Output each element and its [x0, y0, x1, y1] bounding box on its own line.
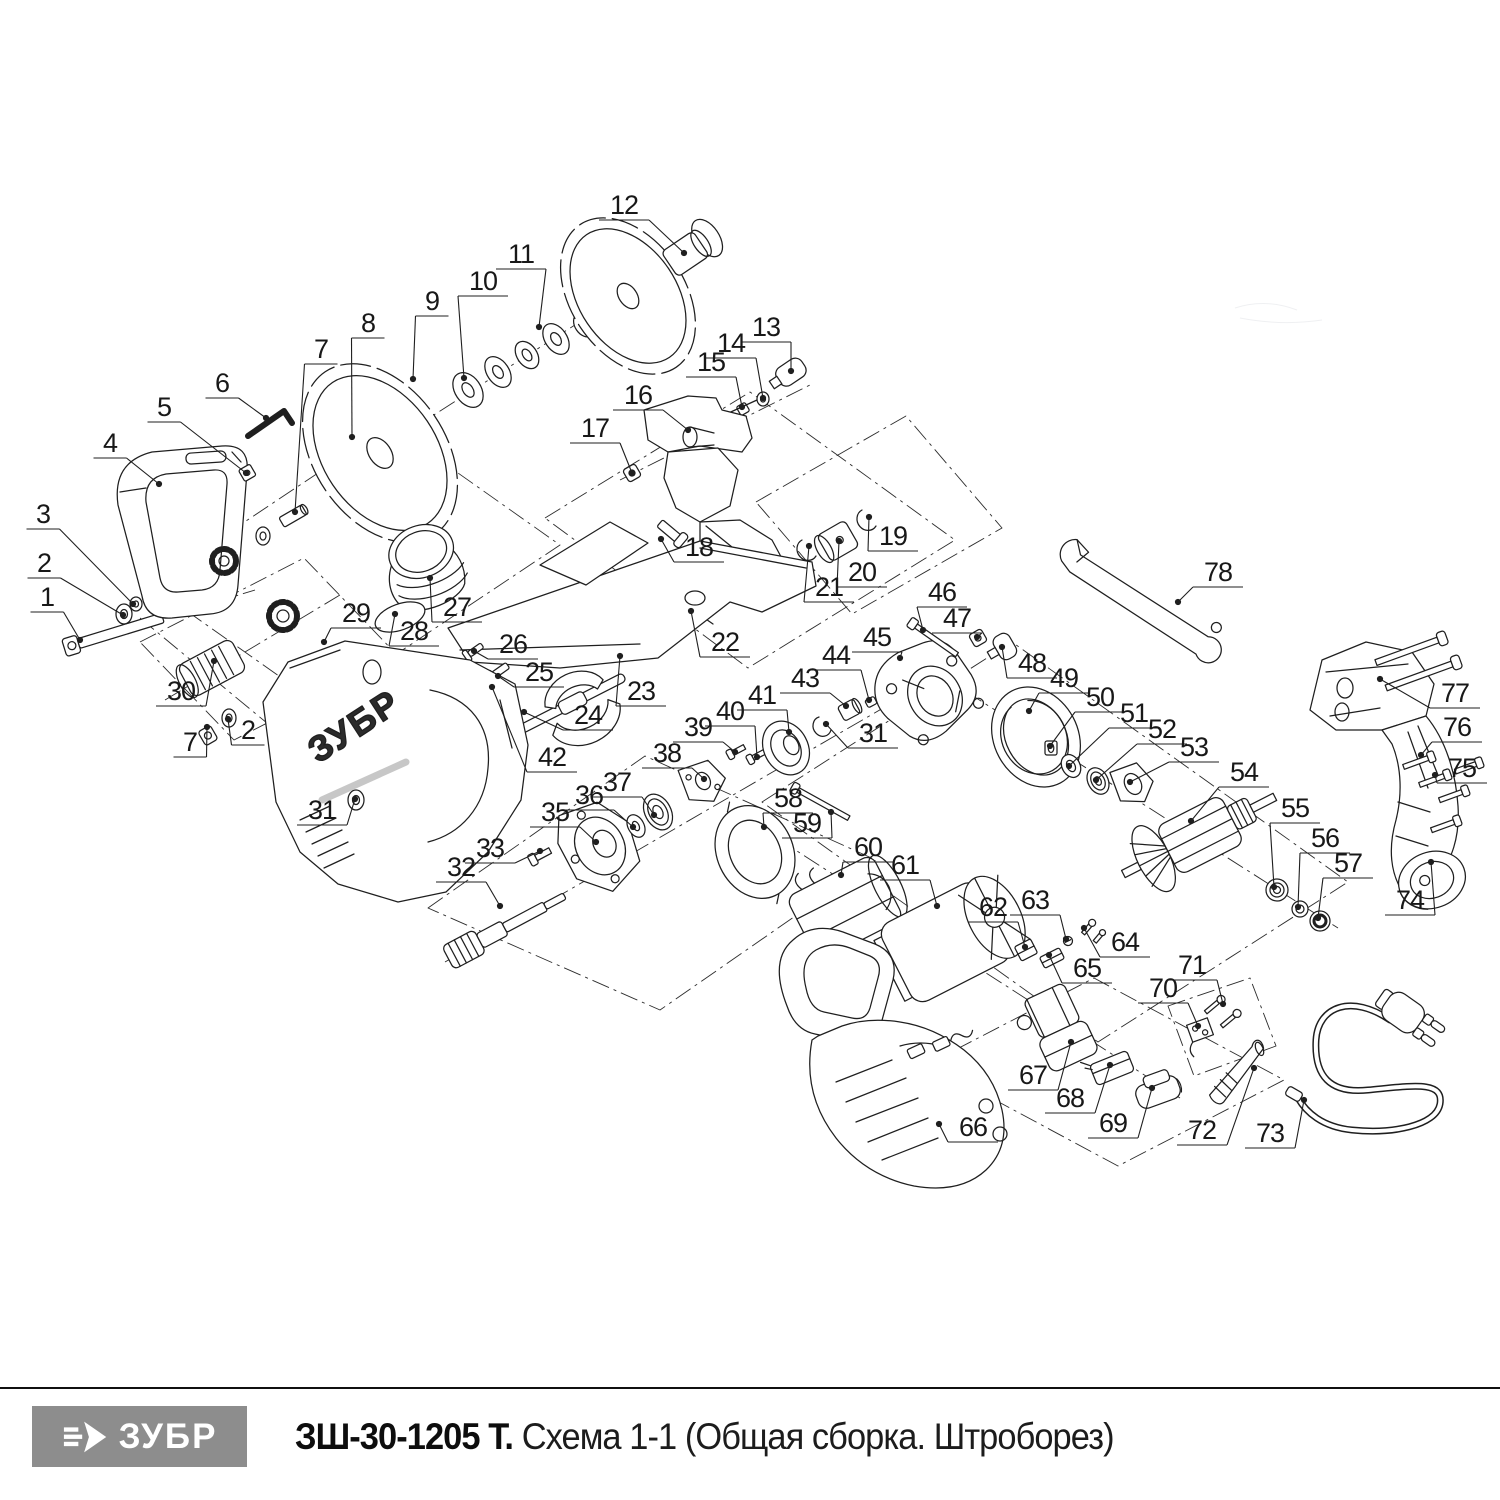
part-number-28-27: 28	[400, 616, 428, 646]
part-number-73-74: 73	[1256, 1118, 1284, 1148]
model-number: ЗШ-30-1205 Т.	[295, 1416, 513, 1457]
part-number-29-28: 29	[342, 598, 370, 628]
part-number-11-10: 11	[508, 239, 534, 269]
part-screw-18	[655, 517, 689, 549]
part-spacer-washers-10-11	[447, 309, 599, 413]
part-number-31-30: 31	[308, 795, 336, 825]
part-number-67-68: 67	[1019, 1060, 1047, 1090]
scan-artifact	[1235, 303, 1322, 322]
part-number-20-19: 20	[848, 557, 876, 587]
part-number-24-23: 24	[574, 700, 603, 730]
part-number-63-64: 63	[1021, 885, 1049, 915]
part-labels: 1234567891011121314151617181920212223242…	[27, 190, 1488, 1148]
part-number-60-61: 60	[854, 832, 882, 862]
part-number-64-65: 64	[1111, 927, 1140, 957]
part-spindle-32	[442, 885, 571, 970]
part-number-74-75: 74	[1396, 885, 1425, 915]
part-motor-housing-61	[869, 866, 1037, 1010]
part-number-2-1: 2	[37, 548, 51, 578]
part-number-57-58: 57	[1334, 848, 1362, 878]
part-number-8-7: 8	[361, 308, 375, 338]
logo-text: ЗУБР	[119, 1419, 218, 1454]
part-number-22-21: 22	[711, 627, 739, 657]
part-front-handle-4	[117, 446, 247, 618]
part-wrench-78	[1045, 535, 1238, 667]
part-number-33-34: 33	[476, 833, 504, 863]
part-number-21-20: 21	[815, 572, 843, 602]
part-number-40-40: 40	[716, 696, 744, 726]
part-bolt-1	[62, 609, 166, 656]
part-number-42-42: 42	[538, 742, 566, 772]
part-number-43-43: 43	[791, 663, 819, 693]
part-number-16-15: 16	[624, 380, 652, 410]
part-knob-13	[766, 355, 809, 394]
part-number-12-11: 12	[610, 190, 638, 220]
part-number-23-22: 23	[627, 676, 655, 706]
part-number-75-76: 75	[1448, 753, 1476, 783]
part-number-52-53: 52	[1148, 714, 1176, 744]
part-number-50-51: 50	[1086, 682, 1114, 712]
scheme-name: Схема 1-1 (Общая сборка. Штроборез)	[522, 1416, 1114, 1457]
part-number-69-70: 69	[1099, 1108, 1127, 1138]
part-diamond-disc-9	[270, 335, 489, 571]
part-number-36-36: 36	[575, 780, 603, 810]
part-number-61-62: 61	[891, 850, 919, 880]
part-number-10-9: 10	[469, 266, 497, 296]
part-number-59-60: 59	[793, 808, 821, 838]
part-number-2-31: 2	[241, 715, 255, 745]
part-number-7-6: 7	[314, 334, 328, 364]
part-number-45-46: 45	[863, 622, 891, 652]
part-pivot-fasteners	[198, 709, 236, 746]
part-number-18-17: 18	[685, 532, 713, 562]
part-number-55-56: 55	[1281, 793, 1309, 823]
part-number-39-39: 39	[684, 712, 712, 742]
part-number-77-78: 77	[1441, 678, 1469, 708]
part-number-78-79: 78	[1204, 557, 1232, 587]
part-number-4-3: 4	[103, 428, 118, 458]
footer-divider	[0, 1387, 1500, 1389]
part-cord-clamp-69	[1131, 1066, 1184, 1111]
part-hex-key-6	[248, 411, 292, 436]
drawing-title: ЗШ-30-1205 Т. Схема 1-1 (Общая сборка. Ш…	[295, 1416, 1114, 1458]
part-pin-7	[256, 503, 309, 545]
part-plate-53	[1106, 757, 1159, 812]
part-clip-21	[797, 540, 816, 560]
exploded-view-drawing: ЗУБР	[0, 0, 1500, 1500]
part-nut-57	[1310, 911, 1330, 931]
part-number-7-32: 7	[183, 727, 197, 757]
part-number-47-48: 47	[943, 603, 971, 633]
part-number-72-73: 72	[1188, 1115, 1216, 1145]
part-cable-gland-72	[1197, 1039, 1277, 1107]
part-number-6-5: 6	[215, 368, 229, 398]
part-number-76-77: 76	[1443, 712, 1471, 742]
part-bearing-55	[1266, 879, 1288, 901]
part-number-48-49: 48	[1018, 648, 1046, 678]
part-cover-49	[975, 671, 1098, 802]
part-number-35-35: 35	[541, 797, 569, 827]
zubr-logo: ЗУБР	[32, 1406, 247, 1467]
part-number-1-0: 1	[40, 582, 54, 612]
part-number-53-54: 53	[1180, 732, 1208, 762]
part-number-32-33: 32	[447, 852, 475, 882]
part-number-37-37: 37	[603, 767, 631, 797]
part-number-70-71: 70	[1149, 973, 1177, 1003]
part-number-5-4: 5	[157, 392, 171, 422]
part-number-49-50: 49	[1050, 663, 1078, 693]
part-number-66-67: 66	[959, 1112, 987, 1142]
part-number-41-41: 41	[748, 680, 776, 710]
part-number-27-26: 27	[443, 592, 471, 622]
part-number-71-72: 71	[1178, 950, 1206, 980]
part-number-31-45: 31	[859, 718, 887, 748]
part-number-65-66: 65	[1073, 953, 1101, 983]
footer-bar: ЗУБР ЗШ-30-1205 Т. Схема 1-1 (Общая сбор…	[32, 1406, 1175, 1467]
part-number-19-18: 19	[879, 521, 907, 551]
part-number-15-14: 15	[697, 347, 725, 377]
part-number-25-24: 25	[525, 657, 553, 687]
part-number-62-63: 62	[979, 892, 1007, 922]
part-number-68-69: 68	[1056, 1083, 1084, 1113]
part-number-44-44: 44	[822, 640, 851, 670]
part-number-9-8: 9	[425, 286, 439, 316]
part-clip-19	[857, 510, 876, 530]
part-number-51-52: 51	[1120, 698, 1148, 728]
parts-diagram-page: ЗУБР	[0, 0, 1500, 1500]
part-number-3-2: 3	[36, 499, 50, 529]
part-number-26-25: 26	[499, 629, 527, 659]
part-number-54-55: 54	[1230, 757, 1259, 787]
zubr-arrow-icon	[62, 1417, 112, 1457]
part-number-13-12: 13	[752, 312, 780, 342]
part-power-cord-73	[1285, 983, 1449, 1131]
part-number-30-29: 30	[167, 676, 195, 706]
part-number-17-16: 17	[581, 413, 609, 443]
